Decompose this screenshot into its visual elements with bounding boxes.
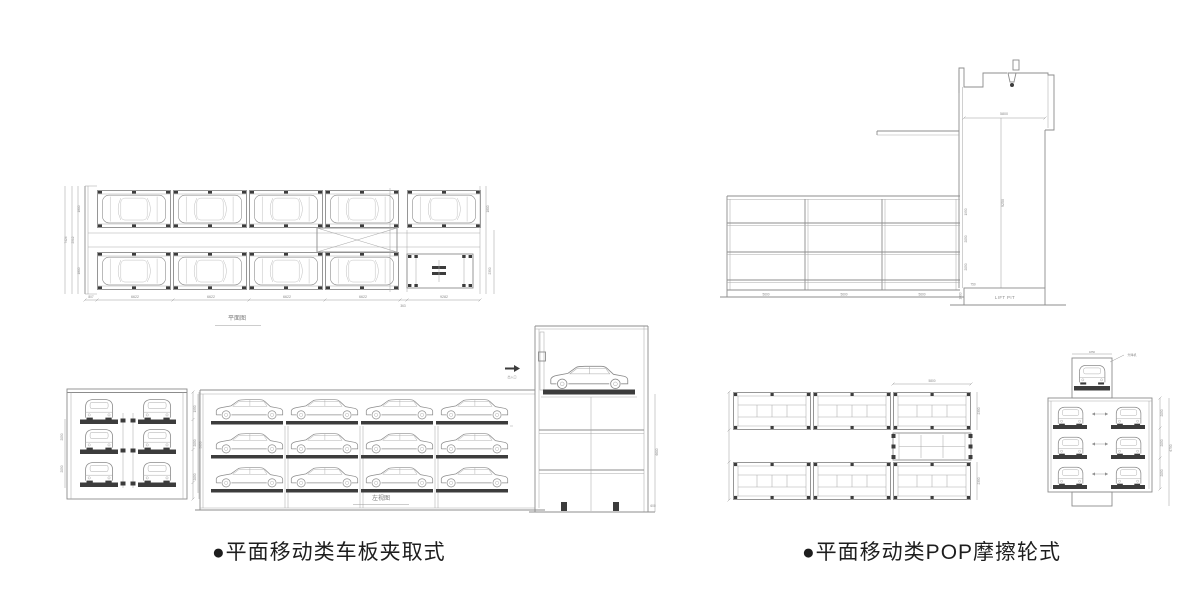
side-cars [211, 400, 508, 493]
dim-label: 1950 [964, 208, 968, 215]
pallet-row-top [734, 393, 971, 430]
lift-cars [1053, 407, 1145, 489]
lift-pit: LIFT PIT 750 1000 [950, 283, 1066, 306]
parking-space [326, 253, 399, 290]
entry-label: 出入口 [507, 374, 516, 379]
lift-dimensions: 2050 2050 2050 6750 [1159, 397, 1174, 507]
entry-arrow-icon [505, 365, 520, 372]
car-side-icon [366, 434, 432, 453]
caption-clamp-type: ●平面移动类车板夹取式 [212, 536, 446, 566]
section-level-dimensions: 1950 2050 2050 [964, 208, 968, 270]
dim-label: 1800 [486, 205, 490, 212]
hoist-pulley-icon [1008, 73, 1016, 82]
side-view-title: 左视图 [372, 494, 390, 502]
plan-parking-row-top [98, 191, 481, 228]
car-front-icon [1116, 407, 1141, 425]
plan-view-drawing: 807 6622 6622 6622 6622 9282 363 1800 25… [58, 178, 508, 333]
car-side-icon [441, 468, 507, 487]
pallet [814, 393, 891, 430]
parking-space [326, 191, 399, 228]
dim-label: 5600 [762, 293, 769, 297]
dim-label: 1000 [959, 292, 963, 299]
dim-label: 2050 [193, 439, 197, 446]
car-side-icon [366, 400, 432, 419]
dim-label: 2350 [977, 477, 981, 484]
end-cars [80, 400, 176, 487]
end-elevation-drawing: 2050 2050 5850 [60, 383, 205, 505]
hoist-label: 升降机 [1127, 352, 1136, 357]
pallet [894, 463, 971, 500]
car-side-icon [551, 366, 628, 388]
entry-arrow-group: 出入口 [505, 365, 520, 379]
car-front-icon [86, 430, 113, 450]
section-view-drawing: 5600 5600 5600 1950 2050 2050 5800 9250 … [718, 48, 1068, 310]
dim-label: 6750 [1169, 444, 1173, 451]
parking-space [98, 191, 171, 228]
car-side-icon [291, 468, 357, 487]
dim-label: 2050 [60, 465, 64, 472]
dim-label: 6622 [131, 295, 139, 299]
dim-label: 2050 [60, 433, 64, 440]
pallet [734, 463, 811, 500]
car-side-icon [216, 468, 282, 487]
dim-label: 1800 [77, 205, 81, 212]
dim-label: 5600 [840, 293, 847, 297]
plan-left-boundary [85, 186, 97, 294]
side-caption: 左视图 [353, 494, 409, 505]
dim-label: 5800 [1000, 112, 1008, 116]
dim-label: 2512 [71, 236, 75, 243]
dim-label: 5600 [918, 293, 925, 297]
car-front-icon [1116, 437, 1141, 455]
dim-label: 9282 [440, 295, 448, 299]
pallet-row-bottom [734, 463, 971, 500]
car-side-icon [441, 400, 507, 419]
car-side-icon [216, 434, 282, 453]
dim-label: 2050 [1160, 409, 1164, 416]
car-side-icon [291, 434, 357, 453]
lift-elevation-drawing: 1850 升降机 [1038, 350, 1178, 508]
section-shaft-dimensions: 5800 9250 [963, 112, 1047, 288]
parking-space [98, 253, 171, 290]
dim-label: 1800 [77, 267, 81, 274]
lift-tower [529, 326, 655, 512]
parking-space [408, 191, 481, 228]
lift-pit-label: LIFT PIT [995, 295, 1015, 300]
dim-label: 807 [88, 295, 94, 299]
car-front-icon [86, 463, 113, 483]
car-side-icon [366, 468, 432, 487]
car-front-icon [1116, 467, 1141, 485]
car-front-icon [144, 463, 171, 483]
dim-label: 9250 [1001, 199, 1005, 207]
lift-carrier-platform [543, 390, 635, 395]
car-front-icon [1058, 467, 1083, 485]
dim-label: 1850 [1089, 350, 1096, 354]
dim-label: 7424 [64, 236, 68, 243]
end-center-posts [121, 413, 136, 488]
dim-label: 6622 [207, 295, 215, 299]
car-side-icon [291, 400, 357, 419]
lift-top-cage: 1850 升降机 [1072, 350, 1137, 398]
lift-bottom-notch [1072, 492, 1112, 506]
plan-lift-shaft [390, 186, 480, 294]
car-front-icon [144, 400, 171, 420]
parking-space [250, 191, 323, 228]
side-dimensions-left: 1950 2050 2050 [193, 394, 198, 493]
dim-label: 1950 [193, 405, 197, 412]
pallet [734, 393, 811, 430]
pallet-plan-drawing: 5800 2350 2350 [723, 376, 993, 508]
dim-label: 2050 [193, 473, 197, 480]
side-dimensions-right: 6600 600 [650, 394, 659, 512]
caption-pop-friction-type: ●平面移动类POP摩擦轮式 [802, 536, 1061, 566]
dim-label: 363 [400, 304, 406, 308]
plan-aisle [88, 228, 480, 252]
dim-label: 2050 [964, 235, 968, 242]
car-side-icon [216, 400, 282, 419]
dim-label: 6600 [655, 448, 659, 455]
plan-parking-row-bottom [98, 253, 399, 290]
dim-label: 750 [970, 283, 976, 287]
dim-label: 2350 [488, 267, 492, 274]
section-structure: 5600 5600 5600 [720, 196, 964, 297]
drawing-sheet: 807 6622 6622 6622 6622 9282 363 1800 25… [0, 0, 1178, 593]
section-shaft-walls [959, 60, 1054, 288]
car-side-icon [441, 434, 507, 453]
dim-label: 6622 [283, 295, 291, 299]
dim-label: 2050 [1160, 439, 1164, 446]
dim-label: 2050 [964, 263, 968, 270]
dim-label: 6622 [359, 295, 367, 299]
section-canopy [877, 131, 959, 135]
pallet [894, 393, 971, 430]
lift-platform [407, 254, 473, 288]
car-front-icon [144, 430, 171, 450]
parapet-outline [959, 68, 1007, 93]
car-front-icon [1058, 407, 1083, 425]
dim-label: 5800 [928, 379, 935, 383]
plan-view-title: 平面图 [228, 315, 246, 322]
car-front-icon [1079, 365, 1105, 384]
parking-space [174, 253, 247, 290]
shuttle-trolley [892, 433, 973, 460]
car-front-icon [86, 400, 113, 420]
pallet [814, 463, 891, 500]
side-elevation-drawing: 1950 2050 2050 出入口 [193, 322, 663, 514]
dim-label: 2050 [1160, 469, 1164, 476]
dim-label: 600 [650, 504, 656, 508]
shift-arrows [1092, 412, 1108, 475]
car-front-icon [1058, 437, 1083, 455]
dim-label: 2350 [977, 407, 981, 414]
parking-space [250, 253, 323, 290]
parking-space [174, 191, 247, 228]
